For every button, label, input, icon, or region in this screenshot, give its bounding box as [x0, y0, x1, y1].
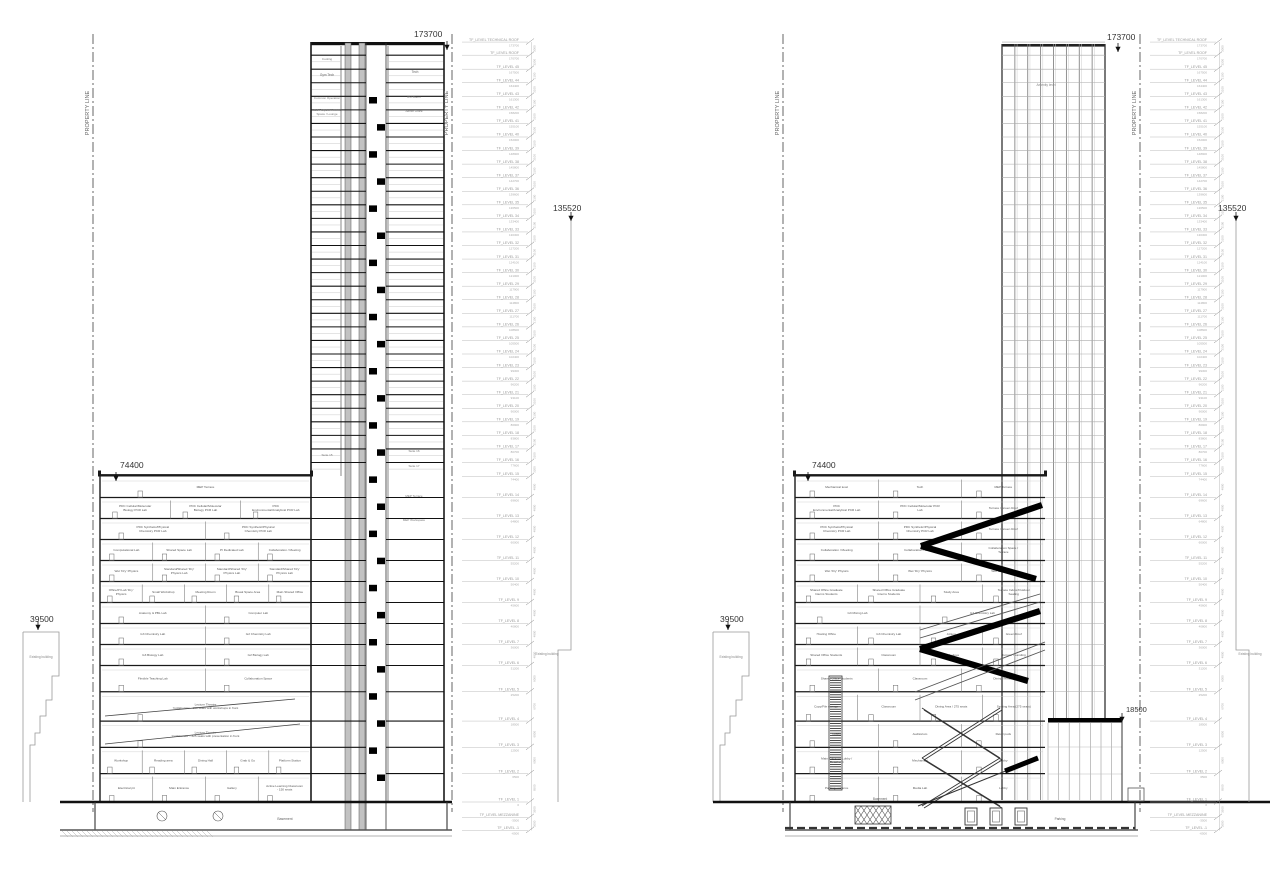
svg-text:139600: 139600 [1197, 192, 1207, 196]
svg-text:3100: 3100 [1221, 371, 1225, 378]
svg-text:TF_LEVEL 45: TF_LEVEL 45 [1185, 65, 1207, 69]
svg-text:145800: 145800 [509, 165, 519, 169]
svg-text:Biology PCR Lab: Biology PCR Lab [194, 508, 218, 512]
svg-text:3100: 3100 [533, 371, 537, 378]
svg-text:TF_LEVEL 1: TF_LEVEL 1 [1187, 798, 1207, 802]
svg-text:TF_LEVEL 40: TF_LEVEL 40 [497, 133, 519, 137]
svg-text:Gym Tech: Gym Tech [320, 73, 335, 77]
svg-text:TF_LEVEL 22: TF_LEVEL 22 [1185, 377, 1207, 381]
svg-text:TF_LEVEL 5: TF_LEVEL 5 [499, 687, 519, 691]
svg-text:3100: 3100 [533, 398, 537, 405]
svg-text:G3 Chemistry Lab: G3 Chemistry Lab [876, 632, 901, 636]
svg-text:83800: 83800 [511, 437, 520, 441]
svg-text:Reading area: Reading area [154, 758, 173, 762]
svg-text:31200: 31200 [1199, 667, 1208, 671]
svg-text:136500: 136500 [1197, 206, 1207, 210]
svg-text:3100: 3100 [1221, 452, 1225, 459]
svg-text:TF_LEVEL 4: TF_LEVEL 4 [1187, 717, 1207, 721]
svg-text:TF_LEVEL 42: TF_LEVEL 42 [497, 106, 519, 110]
svg-text:77600: 77600 [1199, 464, 1208, 468]
svg-text:55200: 55200 [511, 562, 520, 566]
right-level-ladder: TF_LEVEL TECHNICAL ROOF1737003000TF_LEVE… [1150, 38, 1225, 836]
svg-text:TF_LEVEL 27: TF_LEVEL 27 [497, 309, 519, 313]
svg-text:TF_LEVEL 25: TF_LEVEL 25 [497, 336, 519, 340]
svg-text:3200: 3200 [533, 59, 537, 66]
svg-text:80700: 80700 [1199, 450, 1208, 454]
svg-text:TF_LEVEL 21: TF_LEVEL 21 [1185, 390, 1207, 394]
svg-text:Main Shared Office: Main Shared Office [277, 590, 304, 594]
svg-text:TF_LEVEL 13: TF_LEVEL 13 [1185, 514, 1207, 518]
svg-text:TF_LEVEL 41: TF_LEVEL 41 [1185, 119, 1207, 123]
svg-text:6500: 6500 [533, 784, 537, 791]
svg-text:TF_LEVEL 28: TF_LEVEL 28 [497, 295, 519, 299]
svg-text:TF_LEVEL 39: TF_LEVEL 39 [1185, 146, 1207, 150]
svg-text:3100: 3100 [1221, 140, 1225, 147]
svg-text:3100: 3100 [1221, 289, 1225, 296]
svg-text:Tech: Tech [917, 485, 924, 489]
right-louvre-stack [829, 676, 842, 790]
svg-text:64800: 64800 [511, 520, 520, 524]
svg-text:74400: 74400 [812, 460, 836, 470]
svg-text:50400: 50400 [1199, 583, 1208, 587]
svg-text:3100: 3100 [533, 276, 537, 283]
left-existing-building-east: 135520Existing building [535, 203, 581, 802]
svg-text:3100: 3100 [1221, 344, 1225, 351]
svg-text:142700: 142700 [1197, 179, 1207, 183]
svg-text:3100: 3100 [533, 262, 537, 269]
svg-text:4800: 4800 [533, 483, 537, 490]
left-level-ladder: TF_LEVEL TECHNICAL ROOF1737003000TF_LEVE… [462, 38, 537, 836]
svg-text:TF_LEVEL -1: TF_LEVEL -1 [1185, 826, 1207, 830]
svg-text:40800: 40800 [511, 625, 520, 629]
svg-text:Flexible Teaching Lab: Flexible Teaching Lab [138, 677, 168, 681]
svg-text:Gallery: Gallery [227, 786, 237, 790]
svg-text:6500: 6500 [1221, 784, 1225, 791]
svg-text:Seating: Seating [1009, 592, 1020, 596]
svg-text:108600: 108600 [1197, 328, 1207, 332]
svg-text:TF_LEVEL 35: TF_LEVEL 35 [1185, 201, 1207, 205]
svg-text:TF_LEVEL 20: TF_LEVEL 20 [1185, 404, 1207, 408]
svg-text:83800: 83800 [1199, 437, 1208, 441]
svg-text:TF_LEVEL 23: TF_LEVEL 23 [1185, 363, 1207, 367]
right-property-line-east: PROPERTY LINE [1132, 34, 1140, 812]
svg-text:-6500: -6500 [511, 832, 519, 836]
svg-text:3100: 3100 [533, 194, 537, 201]
building-sections-canvas: PROPERTY LINE39500Existing buildingMEP T… [0, 0, 1280, 881]
svg-text:TF_LEVEL 17: TF_LEVEL 17 [497, 445, 519, 449]
svg-text:3100: 3100 [533, 384, 537, 391]
svg-text:TF_LEVEL MEZZANINE: TF_LEVEL MEZZANINE [480, 813, 520, 817]
svg-text:TF_LEVEL 30: TF_LEVEL 30 [1185, 268, 1207, 272]
svg-text:3200: 3200 [1221, 466, 1225, 473]
svg-text:6700: 6700 [1221, 703, 1225, 710]
svg-text:TF_LEVEL 12: TF_LEVEL 12 [497, 535, 519, 539]
svg-text:TF_LEVEL 17: TF_LEVEL 17 [1185, 445, 1207, 449]
svg-text:Collaboration / Meeting: Collaboration / Meeting [269, 548, 301, 552]
svg-text:-3500: -3500 [1199, 819, 1207, 823]
svg-text:6000: 6000 [533, 731, 537, 738]
svg-text:3100: 3100 [1221, 99, 1225, 106]
svg-text:0: 0 [1205, 803, 1207, 807]
svg-text:96200: 96200 [511, 382, 520, 386]
svg-text:Parking: Parking [1055, 817, 1066, 821]
svg-text:G3 Mixing Lab: G3 Mixing Lab [848, 611, 868, 615]
svg-text:Mechanical level: Mechanical level [825, 485, 848, 489]
svg-text:18500: 18500 [1199, 722, 1208, 726]
svg-text:3100: 3100 [533, 452, 537, 459]
left-property-line-east: PROPERTY LINE [444, 34, 452, 812]
svg-text:39500: 39500 [720, 614, 744, 624]
svg-text:TF_LEVEL 28: TF_LEVEL 28 [1185, 295, 1207, 299]
svg-text:4800: 4800 [533, 609, 537, 616]
svg-text:3100: 3100 [1221, 113, 1225, 120]
svg-text:TF_LEVEL 8: TF_LEVEL 8 [1187, 619, 1207, 623]
svg-text:Retail pods: Retail pods [996, 732, 1012, 736]
svg-text:Media Lab: Media Lab [913, 786, 928, 790]
svg-text:Admin Office: Admin Office [405, 109, 422, 113]
svg-text:60000: 60000 [511, 541, 520, 545]
svg-text:3100: 3100 [1221, 154, 1225, 161]
svg-text:TF_LEVEL 9: TF_LEVEL 9 [1187, 598, 1207, 602]
left-section: PROPERTY LINE39500Existing buildingMEP T… [23, 29, 582, 837]
svg-text:-3500: -3500 [511, 819, 519, 823]
svg-text:3100: 3100 [1221, 262, 1225, 269]
svg-text:PROPERTY LINE: PROPERTY LINE [444, 90, 450, 135]
svg-text:39500: 39500 [30, 614, 54, 624]
svg-text:TF_LEVEL TECHNICAL ROOF: TF_LEVEL TECHNICAL ROOF [469, 38, 520, 42]
svg-text:TF_LEVEL ROOF: TF_LEVEL ROOF [1178, 51, 1208, 55]
svg-text:TF_LEVEL 32: TF_LEVEL 32 [1185, 241, 1207, 245]
svg-text:TF_LEVEL 2: TF_LEVEL 2 [499, 769, 519, 773]
svg-text:4800: 4800 [533, 630, 537, 637]
svg-text:TF_LEVEL 30: TF_LEVEL 30 [497, 268, 519, 272]
svg-text:3100: 3100 [1221, 425, 1225, 432]
svg-text:Shared Office Students: Shared Office Students [810, 653, 842, 657]
svg-text:155100: 155100 [509, 125, 519, 129]
svg-text:PROPERTY LINE: PROPERTY LINE [775, 90, 781, 135]
svg-text:69600: 69600 [511, 499, 520, 503]
svg-text:148900: 148900 [1197, 152, 1207, 156]
svg-text:Lab: Lab [917, 508, 922, 512]
svg-text:3100: 3100 [1221, 208, 1225, 215]
svg-text:3000: 3000 [533, 45, 537, 52]
svg-text:40800: 40800 [1199, 625, 1208, 629]
svg-text:Electrical pit: Electrical pit [118, 786, 135, 790]
svg-text:117900: 117900 [1197, 287, 1207, 291]
svg-text:TF_LEVEL 27: TF_LEVEL 27 [1185, 309, 1207, 313]
svg-text:3000: 3000 [533, 820, 537, 827]
svg-text:3100: 3100 [533, 208, 537, 215]
svg-text:50400: 50400 [511, 583, 520, 587]
svg-text:36000: 36000 [1199, 646, 1208, 650]
svg-text:3100: 3100 [533, 411, 537, 418]
svg-text:Basement: Basement [873, 797, 887, 801]
svg-text:6000: 6000 [1221, 731, 1225, 738]
svg-text:Seating Area (275 seats): Seating Area (275 seats) [997, 704, 1031, 708]
svg-text:18500: 18500 [511, 722, 520, 726]
svg-text:TF_LEVEL 16: TF_LEVEL 16 [497, 458, 519, 462]
svg-text:TF_LEVEL 10: TF_LEVEL 10 [1185, 577, 1207, 581]
svg-text:TF_LEVEL 18: TF_LEVEL 18 [1185, 431, 1207, 435]
svg-text:TF_LEVEL 10: TF_LEVEL 10 [497, 577, 519, 581]
svg-text:105500: 105500 [509, 342, 519, 346]
svg-text:158200: 158200 [1197, 111, 1207, 115]
svg-text:4800: 4800 [1221, 546, 1225, 553]
svg-text:TF_LEVEL 18: TF_LEVEL 18 [497, 431, 519, 435]
svg-text:TF_LEVEL 8: TF_LEVEL 8 [499, 619, 519, 623]
svg-text:3100: 3100 [533, 249, 537, 256]
left-podium: MEP TerracePDC Cellular/MolecularBiology… [98, 471, 313, 803]
svg-text:Suite 17: Suite 17 [408, 464, 419, 468]
svg-text:TF_LEVEL 29: TF_LEVEL 29 [497, 282, 519, 286]
svg-text:130300: 130300 [1197, 233, 1207, 237]
svg-text:64800: 64800 [1199, 520, 1208, 524]
svg-text:4800: 4800 [533, 546, 537, 553]
svg-text:161300: 161300 [1197, 98, 1207, 102]
svg-text:Terrace / Green Roof: Terrace / Green Roof [989, 506, 1018, 510]
svg-text:Chemistry PCR Lab: Chemistry PCR Lab [823, 529, 851, 533]
svg-text:Dining Hall: Dining Hall [198, 758, 213, 762]
svg-text:TF_LEVEL 19: TF_LEVEL 19 [497, 418, 519, 422]
svg-text:TF_LEVEL 25: TF_LEVEL 25 [1185, 336, 1207, 340]
svg-text:3100: 3100 [1221, 72, 1225, 79]
left-property-line-west: PROPERTY LINE [85, 34, 93, 812]
svg-text:TF_LEVEL 16: TF_LEVEL 16 [1185, 458, 1207, 462]
svg-text:TF_LEVEL 6: TF_LEVEL 6 [1187, 661, 1207, 665]
svg-text:60000: 60000 [1199, 541, 1208, 545]
svg-text:86900: 86900 [1199, 423, 1208, 427]
svg-text:MEP Terrace: MEP Terrace [197, 485, 215, 489]
svg-text:3100: 3100 [533, 86, 537, 93]
svg-text:3100: 3100 [1221, 235, 1225, 242]
svg-text:TF_LEVEL 44: TF_LEVEL 44 [1185, 78, 1207, 82]
svg-text:3100: 3100 [1221, 181, 1225, 188]
svg-text:4800: 4800 [1221, 483, 1225, 490]
svg-text:6700: 6700 [533, 703, 537, 710]
svg-text:124100: 124100 [509, 260, 519, 264]
svg-text:Physics Lab: Physics Lab [171, 571, 188, 575]
svg-text:4800: 4800 [533, 504, 537, 511]
svg-text:3100: 3100 [533, 181, 537, 188]
svg-text:96200: 96200 [1199, 382, 1208, 386]
svg-text:G2 Chemistry Lab: G2 Chemistry Lab [246, 632, 271, 636]
svg-text:TF_LEVEL 34: TF_LEVEL 34 [1185, 214, 1207, 218]
svg-text:170700: 170700 [1197, 56, 1207, 60]
svg-text:Terrace: Terrace [998, 550, 1009, 554]
svg-text:18500: 18500 [1126, 705, 1147, 714]
svg-text:Chemistry PCR Lab: Chemistry PCR Lab [245, 529, 273, 533]
svg-text:TF_LEVEL 9: TF_LEVEL 9 [499, 598, 519, 602]
svg-text:4800: 4800 [533, 525, 537, 532]
svg-text:Cooling: Cooling [322, 57, 333, 61]
svg-text:173700: 173700 [1197, 43, 1207, 47]
svg-text:RU Room: RU Room [407, 95, 421, 99]
svg-text:TF_LEVEL 37: TF_LEVEL 37 [497, 173, 519, 177]
svg-text:161300: 161300 [509, 98, 519, 102]
svg-text:Wet 'Dry' Physics: Wet 'Dry' Physics [825, 569, 849, 573]
svg-text:Lobby: Lobby [999, 786, 1008, 790]
svg-text:Existing building: Existing building [29, 655, 52, 659]
svg-text:3100: 3100 [533, 289, 537, 296]
svg-text:121000: 121000 [509, 274, 519, 278]
svg-text:4800: 4800 [1221, 609, 1225, 616]
right-markers: 17370074400 [805, 32, 1135, 481]
svg-text:Wet 'Dry' Physics: Wet 'Dry' Physics [114, 569, 138, 573]
svg-text:Computer Lab: Computer Lab [248, 611, 268, 615]
svg-text:25200: 25200 [1199, 693, 1208, 697]
svg-text:31200: 31200 [511, 667, 520, 671]
svg-text:TF_LEVEL 11: TF_LEVEL 11 [1185, 556, 1207, 560]
svg-text:TF_LEVEL 37: TF_LEVEL 37 [1185, 173, 1207, 177]
svg-text:6500: 6500 [512, 775, 519, 779]
svg-text:74400: 74400 [511, 478, 520, 482]
svg-text:136500: 136500 [509, 206, 519, 210]
svg-text:3100: 3100 [1221, 398, 1225, 405]
svg-text:3100: 3100 [533, 72, 537, 79]
svg-text:G2 Biology Lab: G2 Biology Lab [248, 653, 269, 657]
right-existing-building-east: 135520Existing building [1218, 203, 1262, 802]
svg-text:TF_LEVEL 45: TF_LEVEL 45 [497, 65, 519, 69]
svg-text:4800: 4800 [1221, 504, 1225, 511]
svg-text:3100: 3100 [1221, 221, 1225, 228]
svg-text:Auditorium: Auditorium [913, 732, 928, 736]
svg-text:3100: 3100 [533, 99, 537, 106]
svg-text:135520: 135520 [553, 203, 582, 213]
svg-text:TF_LEVEL 19: TF_LEVEL 19 [1185, 418, 1207, 422]
svg-text:Common Operation: Common Operation [314, 96, 341, 100]
svg-text:TF_LEVEL 24: TF_LEVEL 24 [497, 350, 519, 354]
svg-text:TF_LEVEL 36: TF_LEVEL 36 [497, 187, 519, 191]
svg-text:25200: 25200 [511, 693, 520, 697]
svg-text:142700: 142700 [509, 179, 519, 183]
svg-text:69600: 69600 [1199, 499, 1208, 503]
svg-text:152000: 152000 [509, 138, 519, 142]
svg-text:6000: 6000 [1221, 757, 1225, 764]
svg-text:TF_LEVEL 4: TF_LEVEL 4 [499, 717, 519, 721]
svg-text:- 150 seats: - 150 seats [277, 788, 293, 792]
svg-text:TF_LEVEL 31: TF_LEVEL 31 [497, 255, 519, 259]
svg-text:3100: 3100 [1221, 86, 1225, 93]
svg-text:3100: 3100 [533, 140, 537, 147]
svg-text:Suite 16: Suite 16 [408, 449, 419, 453]
svg-text:Hosting Office: Hosting Office [817, 632, 837, 636]
svg-text:Interns Students: Interns Students [815, 592, 838, 596]
svg-text:Platform Station: Platform Station [279, 758, 301, 762]
svg-text:108600: 108600 [509, 328, 519, 332]
svg-text:Classroom: Classroom [881, 653, 896, 657]
svg-text:TF_LEVEL 2: TF_LEVEL 2 [1187, 769, 1207, 773]
svg-text:TF_LEVEL 1: TF_LEVEL 1 [499, 798, 519, 802]
right-escalators [915, 594, 1045, 808]
svg-text:Amenity level: Amenity level [1037, 83, 1056, 87]
svg-text:155100: 155100 [1197, 125, 1207, 129]
svg-text:TF_LEVEL 5: TF_LEVEL 5 [1187, 687, 1207, 691]
svg-text:74400: 74400 [120, 460, 144, 470]
right-property-line-west: PROPERTY LINE [775, 34, 783, 812]
svg-text:Collaboration Space: Collaboration Space [244, 677, 272, 681]
svg-text:PROPERTY LINE: PROPERTY LINE [1132, 90, 1138, 135]
svg-text:3100: 3100 [533, 330, 537, 337]
svg-text:TF_LEVEL 38: TF_LEVEL 38 [1185, 160, 1207, 164]
svg-text:TF_LEVEL 35: TF_LEVEL 35 [497, 201, 519, 205]
svg-text:3100: 3100 [533, 438, 537, 445]
svg-text:93100: 93100 [1199, 396, 1208, 400]
svg-text:-6500: -6500 [1199, 832, 1207, 836]
svg-text:4800: 4800 [1221, 567, 1225, 574]
svg-text:127200: 127200 [1197, 247, 1207, 251]
svg-text:164400: 164400 [509, 84, 519, 88]
svg-text:3100: 3100 [1221, 303, 1225, 310]
svg-text:TF_LEVEL 15: TF_LEVEL 15 [1185, 472, 1207, 476]
svg-text:TF_LEVEL 7: TF_LEVEL 7 [499, 640, 519, 644]
svg-text:TF_LEVEL -1: TF_LEVEL -1 [497, 826, 519, 830]
svg-text:139600: 139600 [509, 192, 519, 196]
svg-text:3100: 3100 [1221, 384, 1225, 391]
svg-text:TF_LEVEL 44: TF_LEVEL 44 [497, 78, 519, 82]
svg-text:TF_LEVEL 26: TF_LEVEL 26 [1185, 323, 1207, 327]
svg-text:TF_LEVEL 22: TF_LEVEL 22 [497, 377, 519, 381]
svg-text:G3 Biology Lab: G3 Biology Lab [142, 653, 163, 657]
svg-text:152000: 152000 [1197, 138, 1207, 142]
svg-text:3100: 3100 [1221, 127, 1225, 134]
svg-text:TF_LEVEL MEZZANINE: TF_LEVEL MEZZANINE [1168, 813, 1208, 817]
svg-text:Wet 'Dry' Physics: Wet 'Dry' Physics [908, 569, 932, 573]
svg-text:Existing building: Existing building [1238, 652, 1261, 656]
right-annex: 18500 [1048, 705, 1147, 802]
left-ground-basement: Basement [60, 802, 452, 837]
svg-text:Chemistry PCR Lab: Chemistry PCR Lab [906, 529, 934, 533]
svg-text:111700: 111700 [509, 315, 519, 319]
svg-text:Shared Space Lab: Shared Space Lab [166, 548, 192, 552]
svg-text:Physics Lab: Physics Lab [224, 571, 241, 575]
svg-text:3100: 3100 [1221, 194, 1225, 201]
svg-text:158200: 158200 [509, 111, 519, 115]
svg-text:Tech: Tech [412, 70, 419, 74]
svg-text:TF_LEVEL 42: TF_LEVEL 42 [1185, 106, 1207, 110]
svg-text:3500: 3500 [1221, 806, 1225, 813]
svg-text:3100: 3100 [533, 425, 537, 432]
svg-text:TF_LEVEL 36: TF_LEVEL 36 [1185, 187, 1207, 191]
svg-text:Basement: Basement [277, 817, 292, 821]
svg-text:4800: 4800 [533, 651, 537, 658]
svg-text:TF_LEVEL 7: TF_LEVEL 7 [1187, 640, 1207, 644]
svg-text:102400: 102400 [1197, 355, 1207, 359]
svg-text:90000: 90000 [511, 409, 520, 413]
svg-text:148900: 148900 [509, 152, 519, 156]
svg-text:3100: 3100 [533, 154, 537, 161]
svg-text:Chemistry PCR Lab: Chemistry PCR Lab [139, 529, 167, 533]
svg-text:99300: 99300 [511, 369, 520, 373]
svg-text:TF_LEVEL 20: TF_LEVEL 20 [497, 404, 519, 408]
svg-text:105500: 105500 [1197, 342, 1207, 346]
svg-text:3100: 3100 [533, 127, 537, 134]
svg-text:TF_LEVEL 23: TF_LEVEL 23 [497, 363, 519, 367]
svg-text:173700: 173700 [1107, 32, 1136, 42]
svg-text:TF_LEVEL TECHNICAL ROOF: TF_LEVEL TECHNICAL ROOF [1157, 38, 1208, 42]
svg-text:6000: 6000 [533, 757, 537, 764]
svg-text:90000: 90000 [1199, 409, 1208, 413]
svg-text:3100: 3100 [1221, 316, 1225, 323]
svg-text:77600: 77600 [511, 464, 520, 468]
svg-text:Biology PCR Lab: Biology PCR Lab [123, 508, 147, 512]
right-section: PROPERTY LINE39500Existing buildingAmeni… [713, 32, 1270, 836]
svg-text:133400: 133400 [509, 220, 519, 224]
svg-text:TF_LEVEL 26: TF_LEVEL 26 [497, 323, 519, 327]
svg-text:3000: 3000 [1221, 45, 1225, 52]
svg-text:TF_LEVEL 12: TF_LEVEL 12 [1185, 535, 1207, 539]
svg-text:TF_LEVEL 14: TF_LEVEL 14 [497, 493, 519, 497]
svg-text:Study Area: Study Area [944, 590, 959, 594]
